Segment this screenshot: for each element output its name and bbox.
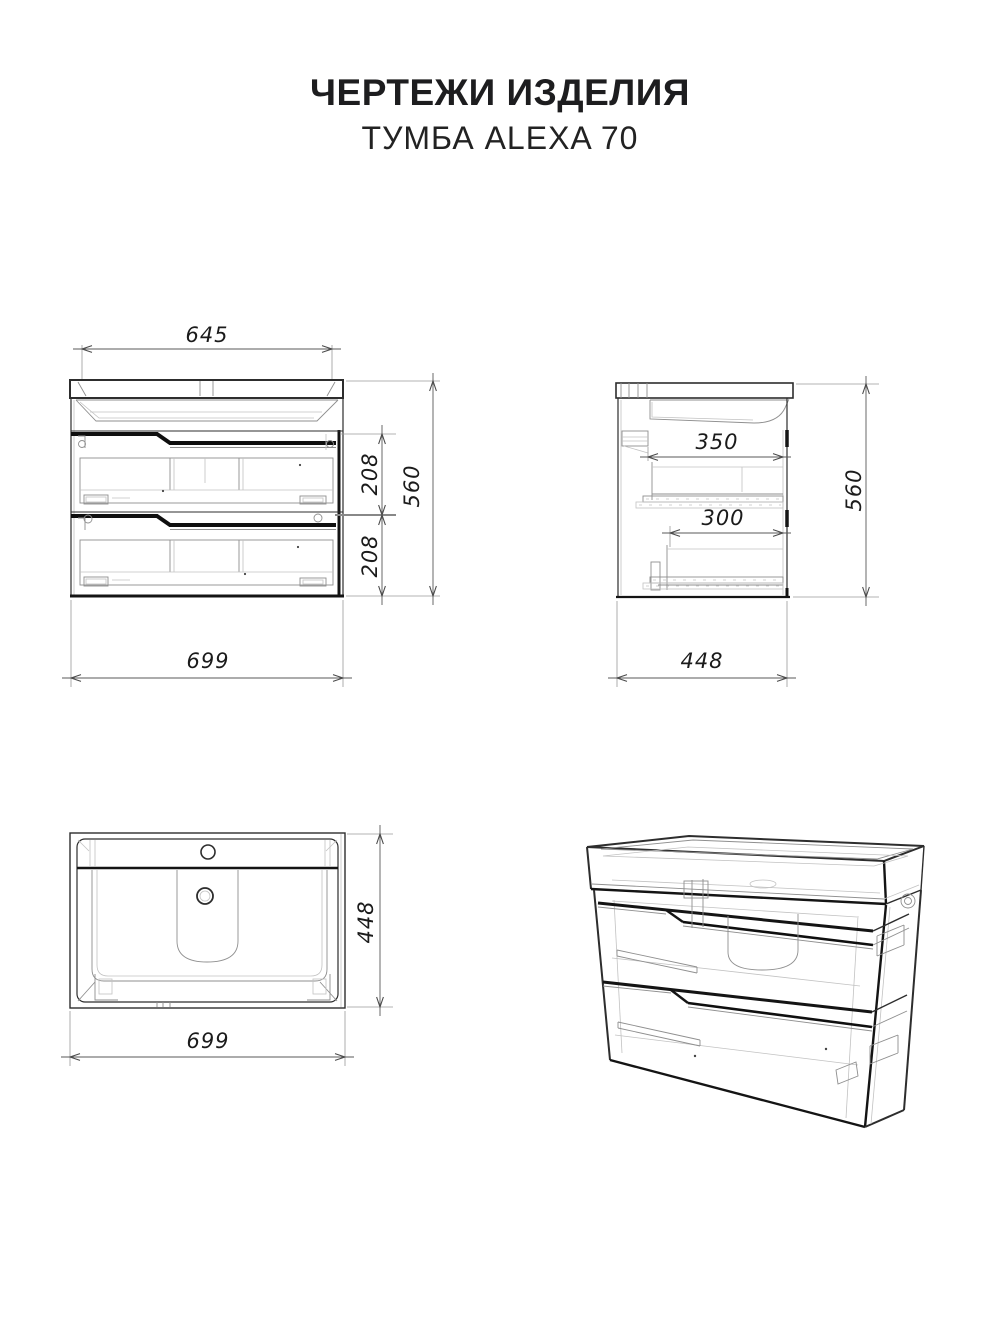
side-dim-bottom-drawer-depth: 300 bbox=[701, 506, 744, 530]
front-view-dimensions: 645 560 208 208 bbox=[62, 323, 440, 687]
front-dim-drawer-bottom-height: 208 bbox=[358, 534, 382, 577]
top-view-drawing: 448 699 bbox=[61, 825, 393, 1066]
front-countertop bbox=[70, 380, 343, 398]
drawings-canvas: 645 560 208 208 bbox=[0, 0, 1000, 1334]
front-drawer-1 bbox=[71, 431, 343, 504]
side-structure bbox=[616, 383, 793, 597]
front-dim-total-height: 560 bbox=[400, 464, 424, 507]
side-view-drawing: 350 300 560 448 bbox=[608, 376, 879, 687]
side-dim-total-height: 560 bbox=[842, 468, 866, 511]
top-structure bbox=[70, 833, 345, 1008]
front-dim-top-width: 645 bbox=[185, 323, 228, 347]
front-dim-total-width: 699 bbox=[186, 649, 229, 673]
iso-view-drawing bbox=[587, 836, 924, 1127]
drawing-sheet: ЧЕРТЕЖИ ИЗДЕЛИЯ ТУМБА ALEXA 70 bbox=[0, 0, 1000, 1334]
side-dim-top-drawer-depth: 350 bbox=[695, 430, 738, 454]
side-dim-total-depth: 448 bbox=[680, 649, 723, 673]
iso-body bbox=[594, 890, 921, 1127]
top-dim-total-depth: 448 bbox=[354, 900, 378, 943]
front-view-drawing: 645 560 208 208 bbox=[62, 323, 440, 687]
top-view-dimensions: 448 699 bbox=[61, 825, 393, 1066]
top-dim-total-width: 699 bbox=[186, 1029, 229, 1053]
front-drawer-2 bbox=[71, 512, 343, 586]
front-dim-drawer-top-height: 208 bbox=[358, 452, 382, 495]
iso-drawer-gap-2 bbox=[603, 982, 907, 1031]
front-carcass bbox=[70, 398, 344, 596]
front-basin bbox=[76, 400, 338, 421]
iso-countertop bbox=[587, 836, 924, 904]
